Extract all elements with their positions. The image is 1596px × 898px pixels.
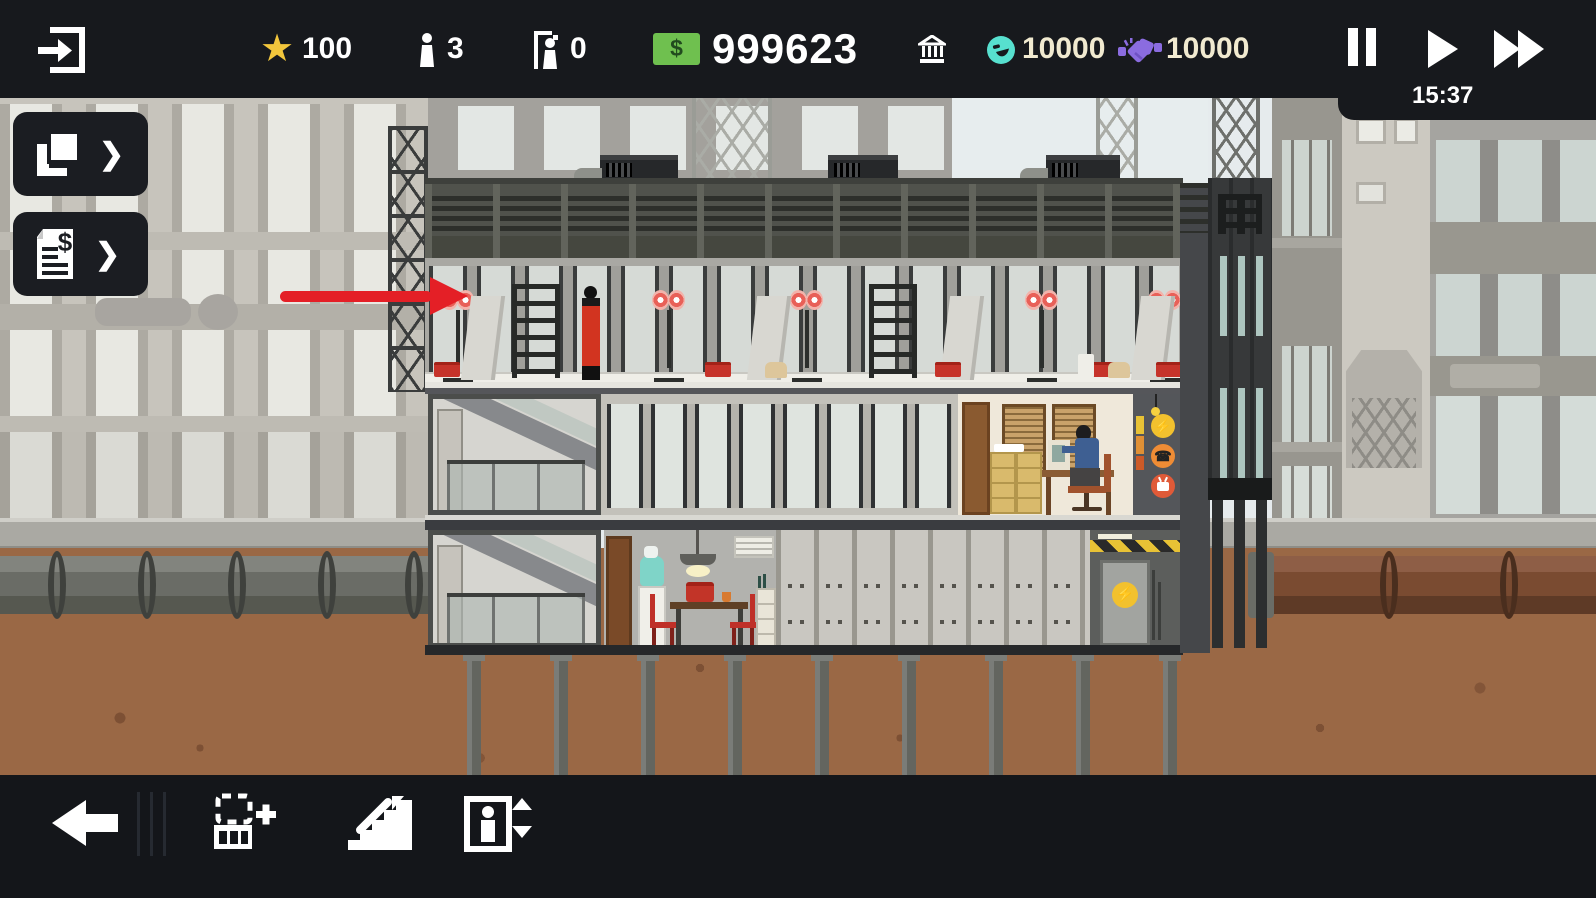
rooftop-truss — [692, 98, 772, 188]
chevron-right-icon: ❯ — [99, 137, 124, 172]
work-light — [1025, 290, 1059, 382]
star-icon: ★ — [260, 0, 294, 98]
office-door — [962, 402, 990, 515]
foundation-pillar — [902, 652, 916, 778]
floor-slab — [425, 382, 1183, 394]
toolbox — [434, 362, 460, 377]
build-panel-button[interactable]: ❯ — [13, 112, 148, 196]
ac-unit — [734, 536, 774, 558]
person-icon — [419, 33, 435, 72]
power-icon: ⚡ — [1151, 414, 1175, 438]
bank-icon[interactable] — [918, 35, 946, 68]
add-room-icon — [212, 793, 278, 853]
crane-tower — [1212, 98, 1260, 182]
step-ladder — [869, 284, 917, 378]
step-ladder — [512, 284, 560, 378]
annex-leg — [1212, 500, 1223, 648]
stairwell-floor2[interactable] — [428, 394, 601, 515]
finance-panel-button[interactable]: $ ❯ — [13, 212, 148, 296]
layers-icon — [29, 126, 85, 182]
annex-leg — [1234, 500, 1245, 648]
power-icon: ⚡ — [1112, 582, 1138, 608]
cash-icon: $ — [653, 33, 700, 65]
work-light — [790, 290, 824, 382]
pipe-coupling — [318, 551, 336, 619]
break-room[interactable] — [604, 530, 776, 648]
clock-time: 15:37 — [1412, 82, 1473, 110]
background-building-right-3 — [1430, 98, 1596, 522]
dark-annex-tower — [1208, 178, 1272, 500]
chevron-right-icon: ❯ — [95, 237, 120, 272]
toolbox — [705, 362, 731, 377]
underground-pipe-right — [1248, 556, 1596, 614]
drawer-unit — [756, 588, 776, 648]
back-button[interactable] — [52, 800, 118, 851]
cooler-box — [686, 582, 714, 602]
electrical-room[interactable]: ⚡ — [1090, 530, 1180, 648]
empty-floor2[interactable] — [601, 394, 958, 515]
invoice-icon: $ — [29, 225, 81, 283]
mug — [722, 592, 731, 602]
play-button[interactable] — [1428, 30, 1458, 73]
background-building-right-1 — [1272, 98, 1342, 522]
foundation-pillar — [815, 652, 829, 778]
annex-leg — [1256, 500, 1267, 648]
foundation-pillar — [1076, 652, 1090, 778]
exit-door-icon — [38, 30, 82, 70]
break-table — [670, 602, 748, 609]
foundation-pillar — [989, 652, 1003, 778]
back-arrow-icon — [52, 800, 118, 846]
foundation-pillar — [1163, 652, 1177, 778]
phone-icon: ☎ — [1151, 444, 1175, 468]
add-elevator-button[interactable] — [464, 796, 534, 857]
pipe-coupling — [138, 551, 156, 619]
visitor-icon — [534, 31, 562, 74]
toolbox — [1156, 362, 1182, 377]
building-right-wall — [1180, 183, 1210, 653]
office-chair — [1068, 486, 1106, 493]
annotation-arrow-head — [430, 277, 468, 315]
cement-sack — [765, 362, 787, 378]
influence-amount: 10000 — [1022, 0, 1105, 98]
influence-icon — [986, 35, 1016, 70]
pause-button[interactable] — [1348, 28, 1384, 71]
background-building-right-2 — [1342, 98, 1430, 522]
handshake-icon — [1118, 38, 1162, 69]
money-amount: 999623 — [712, 0, 858, 98]
game-stage: ⚡ ☎ — [0, 0, 1596, 898]
breakroom-door — [606, 536, 632, 648]
file-cabinet — [1016, 452, 1042, 514]
svg-text:$: $ — [58, 227, 73, 257]
pipe-coupling — [1500, 551, 1518, 619]
utility-shaft: ⚡ ☎ — [1133, 394, 1180, 515]
mechanical-roof-floor — [425, 183, 1183, 258]
population-count: 3 — [447, 0, 464, 98]
exit-button[interactable] — [36, 26, 88, 79]
papers — [994, 444, 1024, 452]
star-count: 100 — [302, 0, 352, 98]
pipe-coupling — [405, 551, 423, 619]
paint-bucket — [1078, 354, 1094, 378]
light-tube — [1098, 534, 1132, 539]
pipe-coupling — [48, 551, 66, 619]
office-room[interactable] — [958, 394, 1133, 515]
building-base-slab — [425, 645, 1183, 655]
fast-forward-button[interactable] — [1494, 30, 1544, 73]
foundation-pillar — [554, 652, 568, 778]
water-cooler — [640, 556, 664, 586]
pipe-coupling — [1380, 551, 1398, 619]
cement-sack — [1108, 362, 1130, 378]
stairs-icon — [340, 794, 412, 852]
floor-slab — [425, 515, 1183, 530]
visitor-count: 0 — [570, 0, 587, 98]
work-light — [652, 290, 686, 382]
storage-floor1[interactable] — [776, 530, 1090, 648]
foundation-pillar — [641, 652, 655, 778]
file-cabinet — [990, 452, 1016, 514]
tv-icon — [1151, 474, 1175, 498]
foundation-pillar — [467, 652, 481, 778]
annotation-arrow — [280, 291, 432, 302]
favor-amount: 10000 — [1166, 0, 1249, 98]
hanging-lamp — [696, 530, 699, 556]
city-scene: ⚡ ☎ — [0, 0, 1596, 898]
sidewalk-left — [0, 518, 430, 550]
foundation-pillar — [728, 652, 742, 778]
scaffold-tower — [388, 126, 428, 392]
elevator-icon — [464, 796, 534, 852]
add-room-button[interactable] — [212, 793, 278, 858]
toolbox — [935, 362, 961, 377]
add-stairs-button[interactable] — [340, 794, 412, 857]
stairwell-floor1[interactable] — [428, 530, 601, 648]
pipe-coupling — [228, 551, 246, 619]
